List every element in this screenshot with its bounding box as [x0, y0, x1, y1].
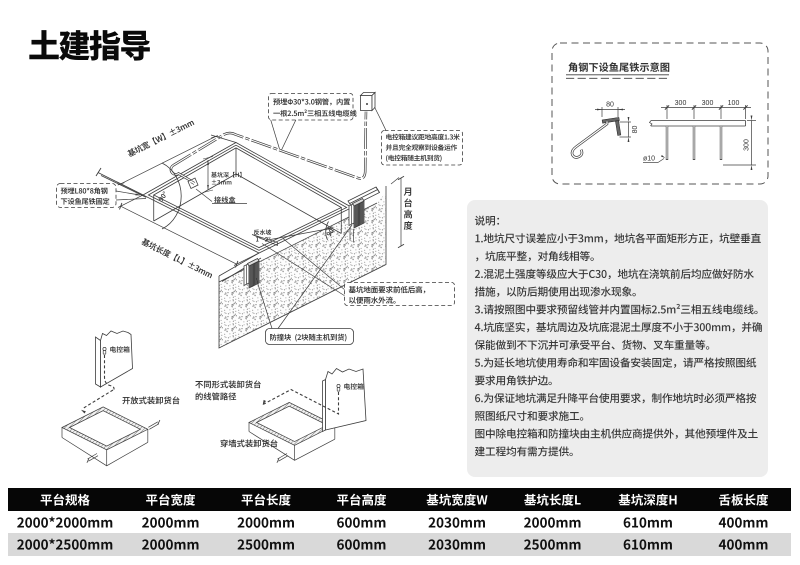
svg-text:300: 300	[675, 100, 687, 107]
svg-text:ø10: ø10	[643, 156, 655, 163]
svg-text:80: 80	[606, 102, 614, 109]
svg-text:100: 100	[728, 100, 740, 107]
svg-text:80: 80	[632, 126, 639, 134]
svg-text:300: 300	[702, 100, 714, 107]
svg-text:300: 300	[744, 139, 751, 151]
